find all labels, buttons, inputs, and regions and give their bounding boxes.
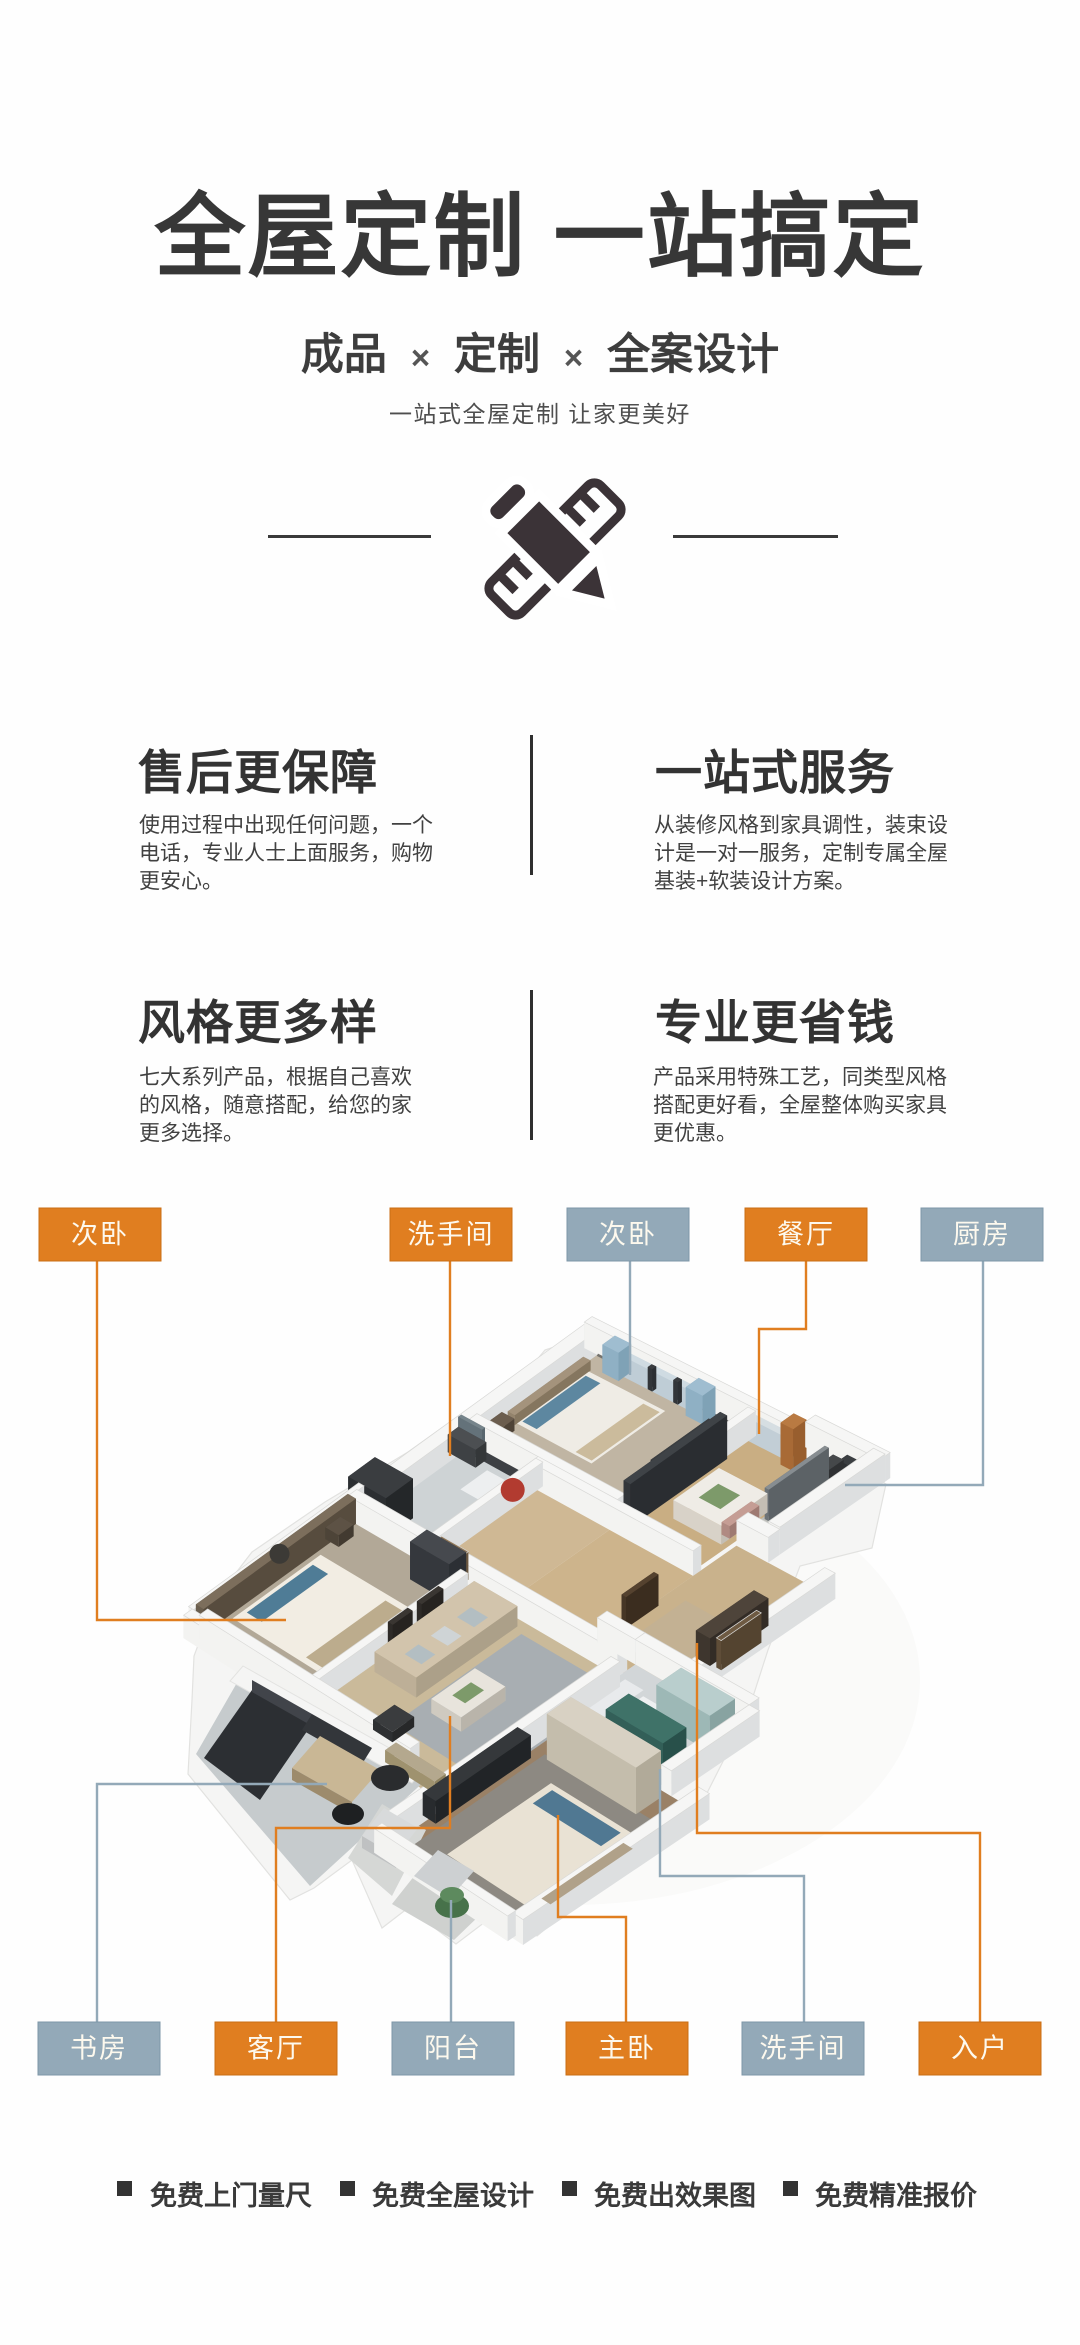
svg-text:书房: 书房 (70, 2034, 128, 2064)
svg-text:洗手间: 洗手间 (408, 1220, 495, 1250)
svg-text:阳台: 阳台 (424, 2034, 482, 2064)
svg-text:主卧: 主卧 (598, 2034, 656, 2064)
svg-text:次卧: 次卧 (71, 1220, 129, 1250)
svg-text:厨房: 厨房 (953, 1220, 1011, 1250)
svg-text:客厅: 客厅 (247, 2034, 305, 2064)
svg-text:洗手间: 洗手间 (760, 2034, 847, 2064)
svg-text:次卧: 次卧 (599, 1220, 657, 1250)
svg-text:餐厅: 餐厅 (777, 1220, 835, 1250)
svg-text:入户: 入户 (951, 2034, 1009, 2064)
